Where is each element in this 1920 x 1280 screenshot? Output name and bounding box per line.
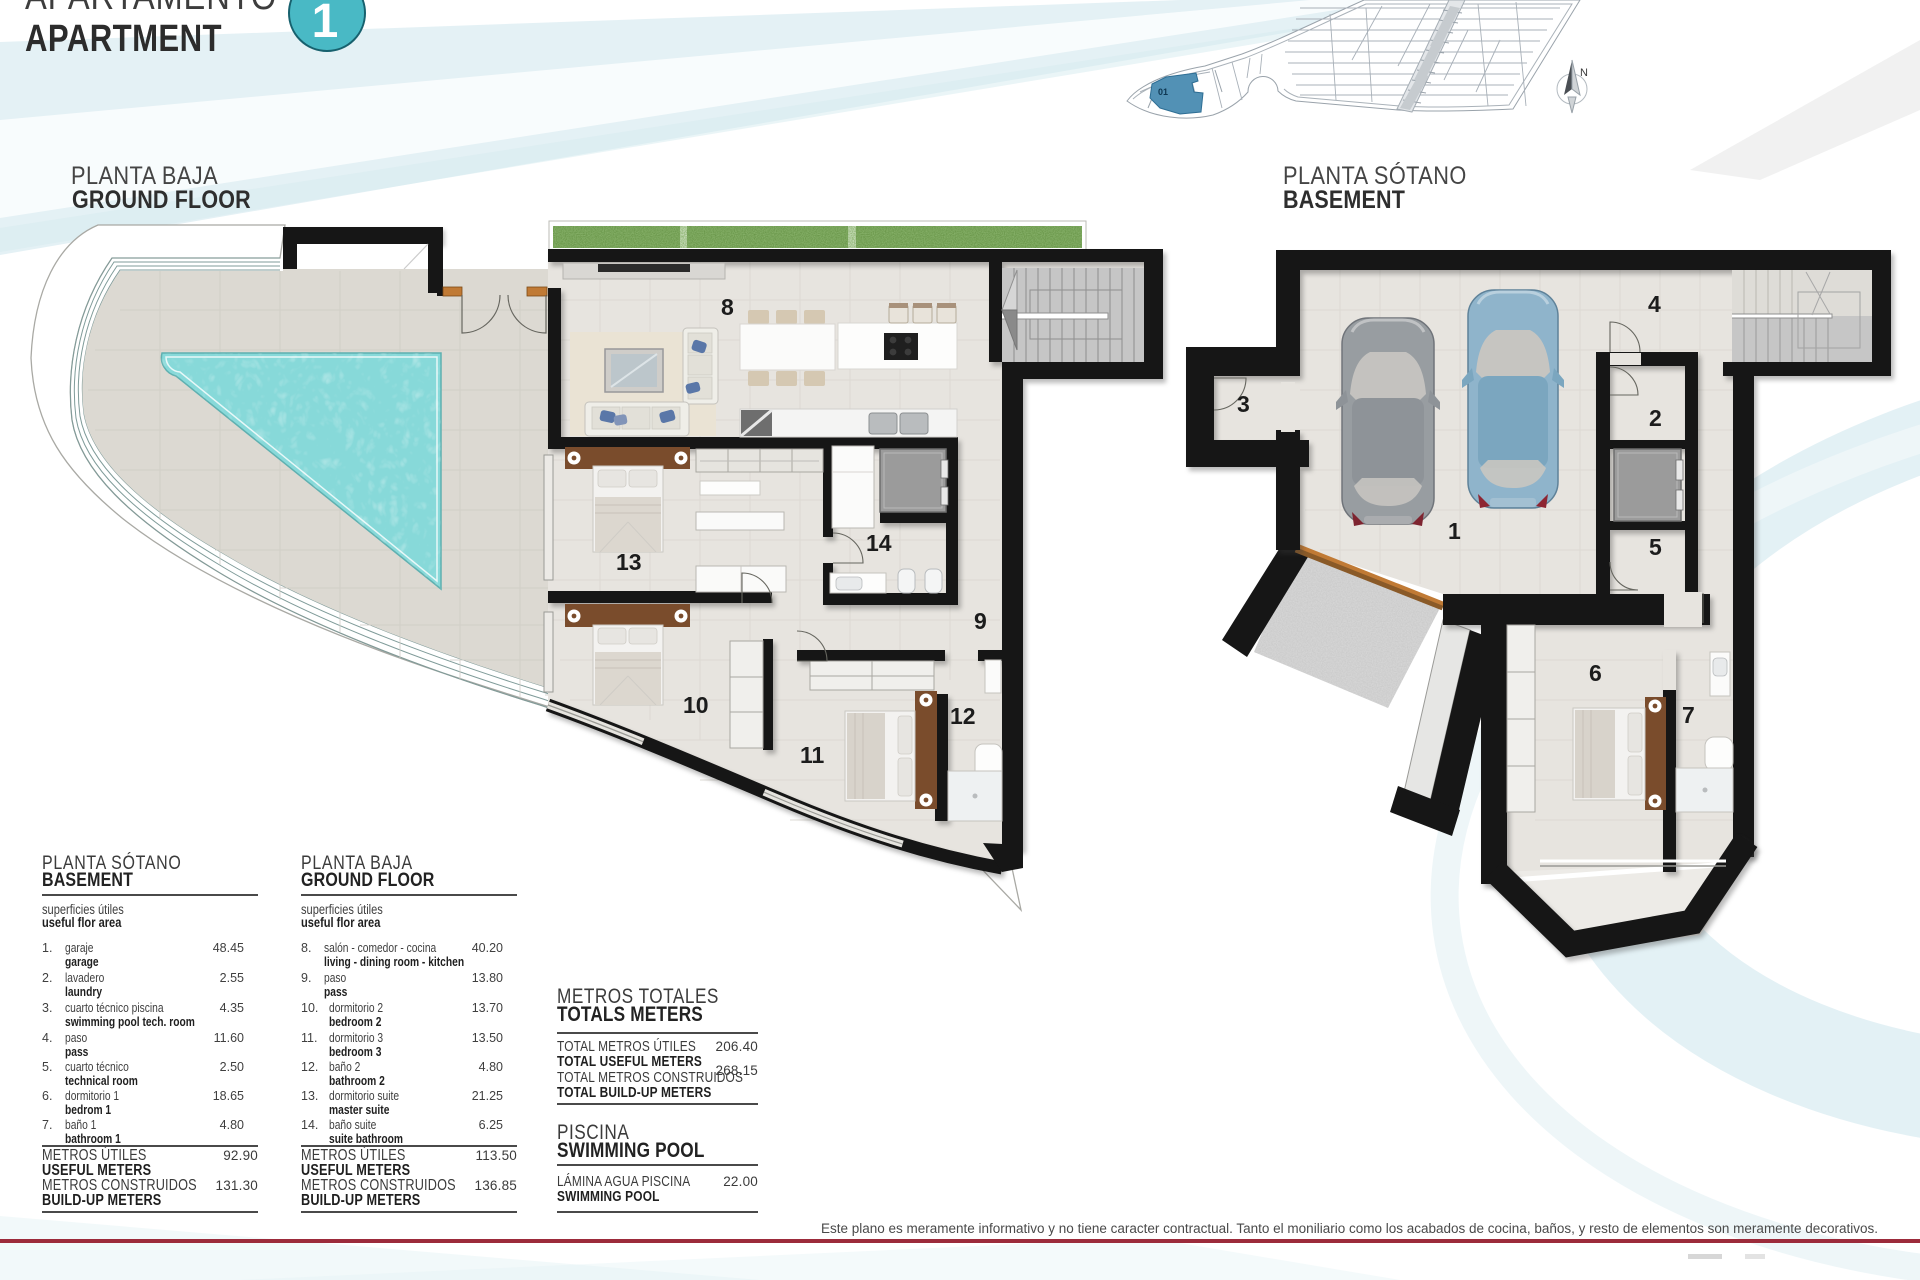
svg-text:13: 13 [616,549,642,575]
svg-text:1: 1 [1448,518,1461,544]
svg-text:7: 7 [1682,702,1695,728]
svg-text:5: 5 [1649,534,1662,560]
svg-text:10: 10 [683,692,709,718]
svg-text:12: 12 [950,703,976,729]
svg-text:4: 4 [1648,291,1661,317]
svg-text:8: 8 [721,294,734,320]
svg-text:6: 6 [1589,660,1602,686]
svg-text:2: 2 [1649,405,1662,431]
svg-text:01: 01 [1158,87,1168,97]
svg-text:14: 14 [866,530,892,556]
svg-text:3: 3 [1237,391,1250,417]
svg-text:N: N [1580,67,1588,79]
svg-text:9: 9 [974,608,987,634]
svg-text:11: 11 [800,742,825,768]
